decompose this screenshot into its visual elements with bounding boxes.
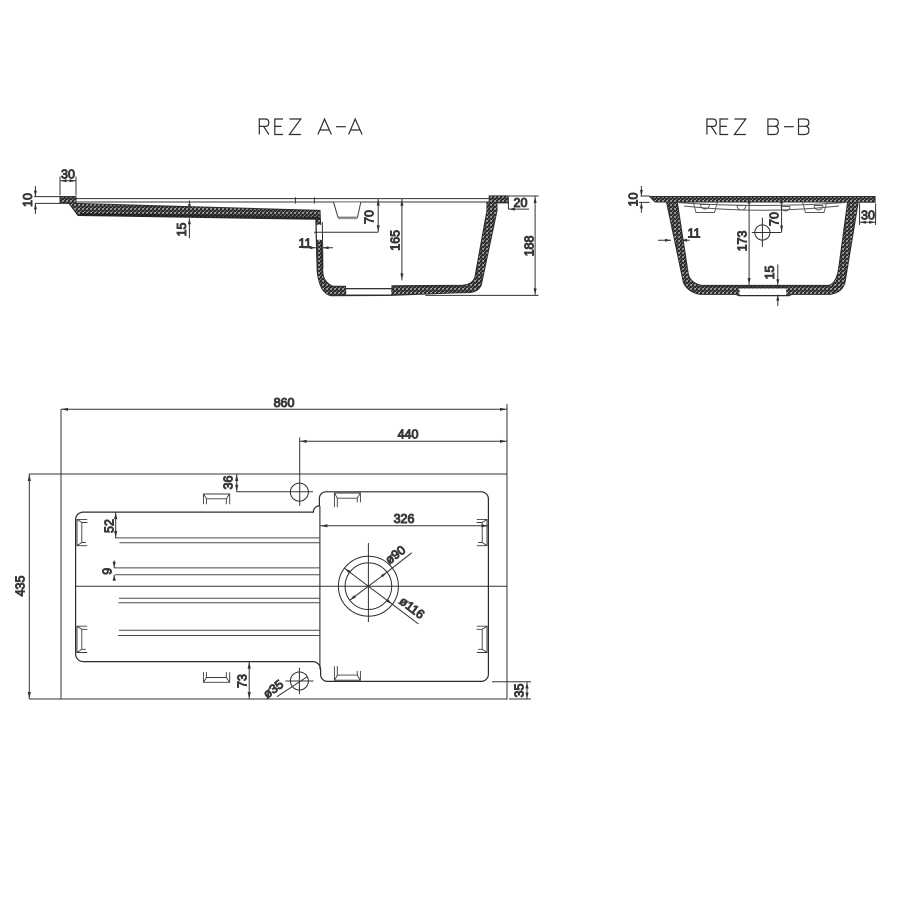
svg-text:9: 9 (101, 568, 115, 575)
svg-text:70: 70 (768, 212, 782, 226)
svg-text:30: 30 (861, 209, 875, 223)
svg-text:ø35: ø35 (260, 677, 286, 701)
svg-text:36: 36 (222, 476, 236, 490)
svg-text:ø116: ø116 (397, 594, 427, 622)
svg-text:173: 173 (736, 231, 750, 252)
svg-text:10: 10 (627, 193, 641, 207)
svg-text:ø90: ø90 (383, 543, 409, 567)
svg-text:860: 860 (274, 396, 295, 410)
svg-text:10: 10 (21, 193, 35, 207)
svg-text:435: 435 (14, 576, 28, 597)
svg-text:188: 188 (523, 236, 537, 257)
svg-text:73: 73 (236, 674, 250, 688)
svg-text:35: 35 (513, 684, 527, 698)
svg-text:52: 52 (103, 519, 117, 533)
svg-text:11: 11 (299, 236, 312, 250)
svg-text:15: 15 (175, 223, 189, 237)
svg-text:326: 326 (394, 512, 415, 526)
svg-text:70: 70 (363, 210, 377, 224)
svg-text:11: 11 (688, 227, 701, 241)
svg-text:15: 15 (763, 266, 777, 280)
svg-text:165: 165 (389, 230, 403, 251)
svg-text:440: 440 (398, 428, 419, 442)
svg-text:20: 20 (514, 196, 528, 210)
svg-text:30: 30 (61, 167, 75, 181)
